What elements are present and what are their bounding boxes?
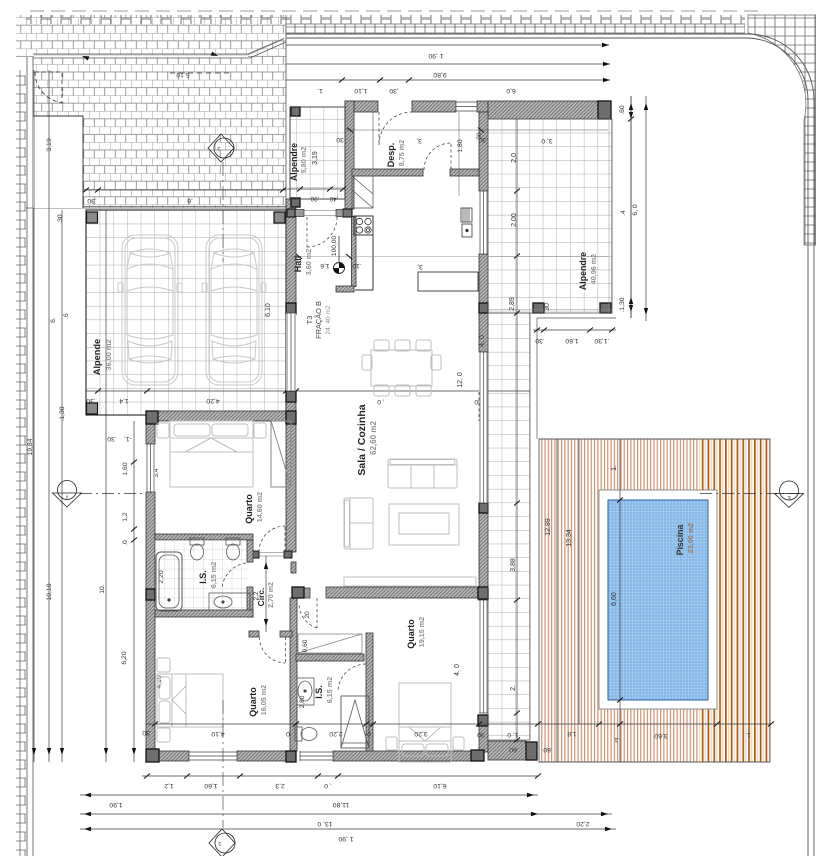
- svg-text:6,60: 6,60: [611, 592, 618, 606]
- svg-text:13,34: 13,34: [566, 529, 573, 547]
- svg-text:24, 40 m2: 24, 40 m2: [325, 305, 332, 335]
- svg-text:12, 0: 12, 0: [457, 372, 464, 388]
- svg-text:.30: .30: [86, 397, 96, 404]
- svg-text:.1,30: .1,30: [594, 337, 609, 344]
- svg-text:6,10: 6,10: [433, 782, 446, 789]
- svg-text:,30: ,30: [389, 87, 399, 94]
- svg-text:3,19: 3,19: [46, 138, 53, 151]
- svg-text:.30: .30: [336, 136, 346, 143]
- svg-text:6,15 m2: 6,15 m2: [325, 677, 334, 703]
- svg-text:,40: ,40: [329, 195, 338, 202]
- svg-text:19,84: 19,84: [27, 438, 34, 455]
- svg-text:2,2: 2,2: [253, 591, 260, 600]
- svg-text:1 ,90: 1 ,90: [338, 835, 353, 842]
- svg-text:23,00 m2: 23,00 m2: [686, 523, 695, 553]
- svg-text:1,2: 1,2: [122, 512, 129, 522]
- svg-text:1,6: 1,6: [320, 262, 330, 269]
- svg-text:c: c: [218, 147, 221, 153]
- svg-text:.1: .1: [614, 736, 620, 743]
- svg-text:.30: .30: [107, 435, 117, 442]
- svg-text:10,10: 10,10: [46, 583, 53, 600]
- svg-text:13, 0: 13, 0: [317, 820, 332, 827]
- svg-text:1,60: 1,60: [204, 782, 217, 789]
- svg-text:.4: .4: [620, 210, 627, 216]
- svg-text:36,00 m2: 36,00 m2: [104, 339, 113, 370]
- svg-text:0: 0: [367, 730, 371, 737]
- svg-text:1,4: 1,4: [119, 397, 129, 404]
- svg-text:3, 0: 3, 0: [541, 137, 553, 144]
- svg-text:.30: .30: [535, 337, 545, 344]
- svg-text:4,20: 4,20: [206, 397, 219, 404]
- svg-text:.10: .10: [352, 262, 362, 269]
- svg-text:Desp.: Desp.: [386, 143, 396, 168]
- svg-text:.30: .30: [142, 729, 152, 736]
- svg-text:4, 0: 4, 0: [454, 664, 461, 676]
- svg-text:3,88: 3,88: [510, 558, 517, 572]
- svg-text:FRAÇÃO B: FRAÇÃO B: [314, 301, 323, 339]
- svg-text:0,60: 0,60: [302, 639, 309, 652]
- svg-text:100,00: 100,00: [331, 236, 338, 257]
- svg-text:1, 0: 1, 0: [507, 731, 519, 738]
- svg-text:Quarto: Quarto: [248, 687, 258, 717]
- svg-text:2,20: 2,20: [329, 730, 342, 737]
- svg-text:3,: 3,: [417, 263, 423, 270]
- svg-text:1.: 1.: [611, 465, 618, 471]
- svg-text:0: 0: [286, 730, 290, 737]
- svg-text:.30: .30: [87, 197, 97, 204]
- svg-text:2,20: 2,20: [576, 820, 589, 827]
- svg-text:1 ,90: 1 ,90: [428, 52, 443, 59]
- svg-text:6, 0: 6, 0: [632, 204, 639, 216]
- svg-text:2,89: 2,89: [509, 297, 516, 311]
- svg-text:Alpende: Alpende: [92, 339, 102, 375]
- svg-text:5,10: 5,10: [176, 71, 189, 78]
- svg-text:1,10: 1,10: [354, 87, 367, 94]
- svg-text:.60: .60: [619, 105, 626, 115]
- svg-text:3,20: 3,20: [414, 730, 427, 737]
- svg-text:10.: 10.: [99, 584, 106, 594]
- svg-text:12,89: 12,89: [545, 518, 552, 536]
- svg-text:T3: T3: [305, 316, 314, 325]
- svg-text:.30: .30: [57, 214, 64, 224]
- svg-text:40,96 m2: 40,96 m2: [589, 254, 598, 284]
- svg-text:c: c: [219, 842, 222, 848]
- svg-text:1.: 1.: [317, 87, 323, 94]
- svg-text:,90: ,90: [310, 195, 319, 202]
- svg-text:, 0: , 0: [377, 398, 385, 405]
- svg-text:3,60 m2: 3,60 m2: [304, 249, 313, 275]
- svg-text:6,20: 6,20: [121, 651, 128, 664]
- svg-text:30: 30: [544, 303, 551, 311]
- svg-text:9,80: 9,80: [433, 71, 446, 78]
- svg-text:1,90: 1,90: [109, 801, 122, 808]
- svg-text:,6: ,6: [187, 197, 193, 204]
- svg-text:3,: 3,: [416, 137, 422, 144]
- svg-text:20: 20: [304, 611, 311, 619]
- svg-text:30: 30: [477, 731, 485, 738]
- svg-text:.1,30: .1,30: [619, 297, 626, 312]
- svg-text:2,3: 2,3: [275, 782, 285, 789]
- svg-text:-1,: -1,: [124, 435, 132, 442]
- svg-text:, 0: , 0: [324, 782, 332, 789]
- svg-text:6.: 6.: [50, 317, 57, 323]
- svg-text:1,80: 1,80: [457, 139, 464, 152]
- svg-text:1.: 1.: [745, 731, 751, 738]
- svg-text:Piscina: Piscina: [675, 524, 685, 555]
- svg-text:62,60 m2: 62,60 m2: [369, 421, 378, 455]
- svg-text:Hall: Hall: [293, 256, 303, 273]
- svg-text:I.S.: I.S.: [314, 685, 324, 699]
- svg-text:.0: .0: [122, 540, 129, 546]
- svg-text:Quarto: Quarto: [244, 494, 254, 524]
- svg-text:16,05 m2: 16,05 m2: [259, 685, 268, 715]
- svg-text:11,80: 11,80: [333, 801, 350, 808]
- svg-text:2.: 2.: [510, 685, 517, 691]
- svg-text:6.10: 6.10: [265, 303, 272, 317]
- svg-text:Alpendre: Alpendre: [578, 252, 588, 290]
- svg-text:.4: .4: [289, 195, 295, 202]
- svg-text:2,70 m2: 2,70 m2: [268, 582, 275, 608]
- svg-text:.60: .60: [509, 746, 519, 753]
- svg-text:Alpendre: Alpendre: [289, 143, 299, 181]
- svg-text:2,80: 2,80: [299, 695, 306, 708]
- svg-text:Sala / Cozinha: Sala / Cozinha: [356, 404, 368, 475]
- svg-text:19,15 m2: 19,15 m2: [417, 617, 426, 647]
- svg-text:I.S.: I.S.: [198, 570, 208, 584]
- svg-text:6,15 m2: 6,15 m2: [209, 562, 218, 588]
- svg-text:4, 0: 4, 0: [479, 335, 486, 347]
- svg-text:.6: .6: [63, 313, 70, 319]
- svg-text:30: 30: [476, 132, 483, 140]
- svg-text:1,60: 1,60: [122, 462, 129, 475]
- svg-text:.1,30: .1,30: [59, 406, 66, 421]
- svg-text:1,2: 1,2: [164, 782, 174, 789]
- svg-text:3,19: 3,19: [312, 151, 319, 165]
- svg-text:1,60: 1,60: [565, 337, 578, 344]
- svg-text:14,60 m2: 14,60 m2: [255, 492, 264, 522]
- svg-text:4,10: 4,10: [211, 730, 224, 737]
- svg-text:.60: .60: [543, 746, 553, 753]
- svg-text:Quarto: Quarto: [406, 619, 416, 649]
- svg-text:6,0: 6,0: [506, 87, 516, 94]
- svg-text:1,8: 1,8: [567, 730, 577, 737]
- svg-text:5,80 m2: 5,80 m2: [299, 147, 308, 173]
- svg-text:3,60: 3,60: [654, 732, 667, 739]
- svg-text:8,75 m2: 8,75 m2: [397, 140, 406, 166]
